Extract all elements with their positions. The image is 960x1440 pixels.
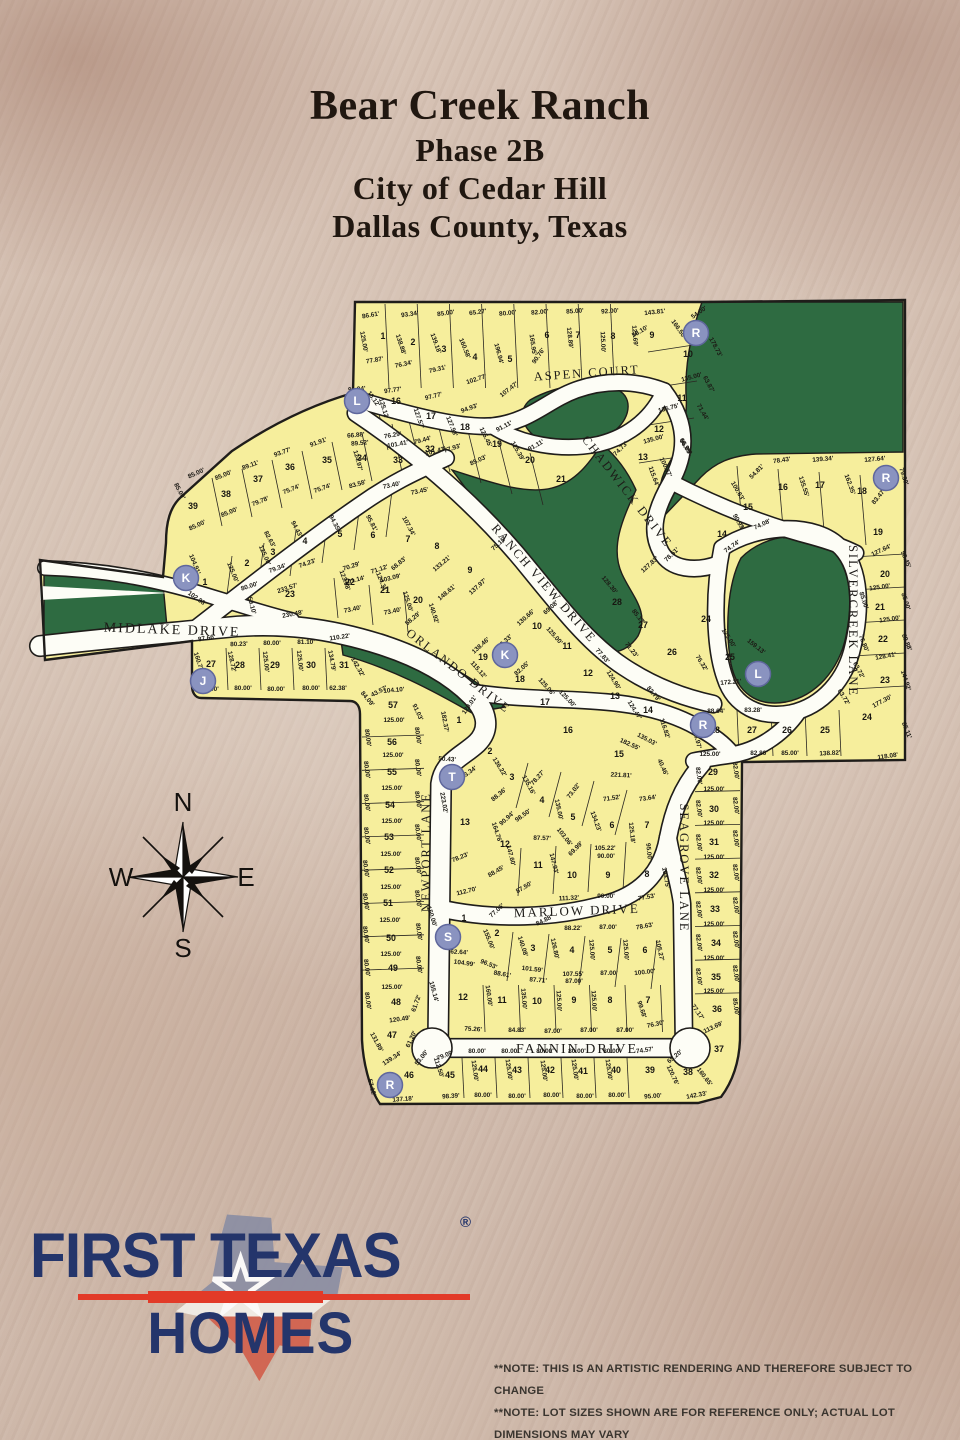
lot-number: 11	[533, 860, 542, 870]
lot-number: 57	[388, 700, 398, 710]
lot-number: 20	[525, 455, 535, 465]
lot-number: 56	[387, 737, 397, 747]
lot-dimension: 80.00'	[576, 1093, 594, 1100]
lot-number: 17	[815, 480, 825, 490]
lot-number: 5	[571, 812, 576, 822]
lot-number: 28	[612, 597, 622, 607]
svg-text:R: R	[692, 326, 701, 340]
lot-number: 9	[650, 330, 655, 340]
lot-number: 47	[387, 1030, 397, 1040]
lot-number: 7	[645, 820, 650, 830]
lot-dimension: 125.00'	[699, 751, 721, 758]
lot-number: 12	[583, 668, 593, 678]
lot-number: 33	[710, 904, 720, 914]
lot-number: 40	[611, 1065, 621, 1075]
lot-dimension: 87.00'	[565, 978, 583, 985]
lot-number: 34	[711, 938, 721, 948]
svg-text:R: R	[699, 718, 708, 732]
disclaimer-notes: **NOTE: THIS IS AN ARTISTIC RENDERING AN…	[494, 1358, 934, 1440]
lot-dimension: 95.00'	[644, 1092, 662, 1100]
lot-number: 15	[614, 749, 624, 759]
lot-dimension: 125.00'	[703, 820, 725, 827]
lot-number: 23	[285, 589, 295, 599]
lot-number: 37	[253, 474, 263, 484]
lot-number: 21	[380, 585, 390, 595]
lot-dimension: 125.00'	[381, 785, 403, 792]
svg-text:R: R	[386, 1078, 395, 1092]
svg-text:S: S	[444, 930, 452, 944]
lot-number: 22	[345, 577, 355, 587]
lot-dimension: 107.55'	[562, 971, 584, 978]
lot-number: 8	[435, 541, 440, 551]
lot-dimension: 80.23'	[230, 641, 248, 649]
logo-homes: HOMES	[94, 1300, 408, 1367]
compass-letter-n: N	[174, 787, 193, 817]
lot-dimension: 87.00'	[616, 1027, 634, 1034]
lot-number: 14	[643, 705, 653, 715]
lot-dimension: 62.38'	[329, 685, 347, 692]
lot-number: 19	[873, 527, 883, 537]
lot-number: 11	[562, 641, 571, 651]
lot-dimension: 84.83'	[508, 1027, 526, 1034]
lot-number: 34	[357, 453, 367, 463]
lot-number: 2	[488, 746, 493, 756]
lot-number: 49	[388, 963, 398, 973]
lot-number: 35	[322, 455, 332, 465]
lot-dimension: 125.00'	[379, 917, 401, 924]
lot-number: 30	[709, 804, 719, 814]
lot-dimension: 125.00'	[554, 990, 562, 1012]
lot-number: 31	[339, 660, 349, 670]
lot-number: 18	[460, 422, 470, 432]
street-name: FANNIN DRIVE	[516, 1042, 638, 1057]
lot-number: 8	[645, 869, 650, 879]
lot-number: 45	[445, 1070, 455, 1080]
lot-number: 32	[425, 444, 435, 454]
map-badge: L	[746, 662, 771, 687]
lot-dimension: 62.64'	[450, 949, 468, 957]
map-badge: T	[440, 765, 465, 790]
lot-number: 44	[478, 1064, 488, 1074]
lot-number: 32	[709, 870, 719, 880]
lot-dimension: 221.81'	[610, 771, 632, 779]
lot-number: 27	[206, 659, 216, 669]
map-badge: L	[345, 389, 370, 414]
lot-number: 9	[606, 870, 611, 880]
lot-dimension: 85.00'	[566, 307, 584, 315]
lot-dimension: 85.00'	[172, 482, 187, 501]
lot-dimension: 125.00'	[381, 984, 403, 991]
lot-number: 10	[567, 870, 577, 880]
lot-number: 26	[782, 725, 792, 735]
lot-number: 10	[532, 996, 542, 1006]
lot-number: 13	[638, 452, 648, 462]
lot-number: 30	[306, 660, 316, 670]
lot-number: 7	[576, 330, 581, 340]
lot-number: 31	[709, 837, 719, 847]
lot-dimension: 125.00'	[703, 921, 725, 928]
lot-number: 36	[712, 1004, 722, 1014]
lot-number: 42	[545, 1065, 555, 1075]
lot-number: 14	[717, 529, 727, 539]
lot-number: 16	[778, 482, 788, 492]
lot-dimension: 87.00'	[580, 1027, 598, 1034]
lot-number: 4	[540, 795, 545, 805]
lot-number: 6	[643, 945, 648, 955]
lot-dimension: 125.00'	[383, 717, 405, 724]
svg-text:J: J	[200, 674, 207, 688]
lot-dimension: 138.82'	[819, 749, 841, 757]
map-badge: R	[691, 713, 716, 738]
lot-number: 16	[391, 396, 401, 406]
lot-number: 5	[338, 529, 343, 539]
lot-dimension: 88.22'	[564, 925, 582, 932]
lot-number: 6	[610, 820, 615, 830]
lot-number: 52	[384, 865, 394, 875]
lot-dimension: 83.28'	[744, 707, 762, 714]
lot-number: 1	[457, 715, 462, 725]
lot-number: 24	[862, 712, 872, 722]
lot-number: 15	[743, 502, 753, 512]
lot-number: 48	[391, 997, 401, 1007]
lot-number: 16	[563, 725, 573, 735]
map-badge: J	[191, 669, 216, 694]
lot-dimension: 125.00'	[703, 786, 725, 793]
lot-dimension: 80.00'	[263, 640, 281, 647]
lot-number: 39	[645, 1065, 655, 1075]
lot-number: 8	[611, 331, 616, 341]
builder-logo: FIRST TEXAS ® HOMES	[28, 1212, 498, 1372]
lot-number: 38	[683, 1067, 693, 1077]
lot-number: 21	[875, 602, 885, 612]
lot-number: 20	[880, 569, 890, 579]
map-badge: R	[378, 1073, 403, 1098]
lot-number: 1	[462, 913, 467, 923]
lot-number: 7	[406, 534, 411, 544]
lot-dimension: 111.32'	[559, 894, 580, 902]
logo-first-texas: FIRST TEXAS	[30, 1220, 450, 1292]
lot-dimension: 87.00'	[600, 970, 618, 977]
svg-text:L: L	[353, 394, 360, 408]
lot-dimension: 125.00'	[381, 818, 403, 825]
lot-dimension: 98.39'	[442, 1092, 460, 1100]
lot-number: 5	[508, 354, 513, 364]
lot-number: 24	[701, 614, 711, 624]
lot-dimension: 85.00'	[781, 750, 799, 757]
lot-dimension: 90.00'	[597, 893, 615, 900]
compass-letter-s: S	[174, 933, 191, 963]
lot-number: 2	[245, 558, 250, 568]
lot-number: 7	[646, 995, 651, 1005]
lot-number: 13	[460, 817, 470, 827]
lot-dimension: 125.00'	[587, 939, 595, 961]
lot-number: 5	[608, 945, 613, 955]
lot-dimension: 92.00'	[601, 307, 619, 315]
lot-dimension: 87.71'	[529, 976, 547, 984]
lot-number: 13	[610, 691, 620, 701]
lot-dimension: 80.00'	[468, 1048, 486, 1055]
lot-dimension: 80.00'	[474, 1092, 492, 1099]
lot-number: 18	[515, 674, 525, 684]
map-badge: K	[174, 566, 199, 591]
lot-number: 23	[880, 675, 890, 685]
lot-number: 20	[413, 595, 423, 605]
lot-number: 22	[878, 634, 888, 644]
lot-number: 36	[285, 462, 295, 472]
lot-number: 21	[556, 474, 566, 484]
lot-number: 54	[385, 800, 395, 810]
lot-dimension: 80.00'	[543, 1092, 561, 1099]
lot-number: 17	[540, 697, 550, 707]
lot-dimension: 50.43'	[438, 755, 456, 763]
lot-dimension: 105.22'	[594, 845, 616, 852]
lot-number: 38	[221, 489, 231, 499]
lot-number: 29	[708, 767, 718, 777]
compass-letter-w: W	[109, 862, 134, 892]
lot-number: 25	[725, 652, 735, 662]
lot-number: 28	[235, 660, 245, 670]
lot-dimension: 82.86'	[750, 750, 768, 757]
lot-number: 12	[500, 839, 510, 849]
svg-text:K: K	[501, 648, 510, 662]
lot-number: 37	[714, 1044, 724, 1054]
lot-number: 8	[608, 995, 613, 1005]
lot-dimension: 80.00'	[234, 685, 252, 692]
lot-number: 25	[820, 725, 830, 735]
lot-dimension: 125.00'	[380, 851, 402, 858]
lot-number: 55	[387, 767, 397, 777]
lot-number: 6	[371, 530, 376, 540]
lot-number: 19	[478, 652, 488, 662]
lot-number: 2	[495, 928, 500, 938]
lot-number: 3	[531, 943, 536, 953]
lot-number: 35	[711, 972, 721, 982]
svg-text:T: T	[448, 770, 456, 784]
lot-dimension: 80.00'	[267, 686, 285, 693]
lot-dimension: 125.00'	[703, 955, 725, 962]
note-lot-sizes: **NOTE: LOT SIZES SHOWN ARE FOR REFERENC…	[494, 1402, 934, 1440]
lot-number: 17	[426, 411, 436, 421]
lot-number: 12	[654, 424, 664, 434]
lot-dimension: 90.00'	[597, 853, 615, 860]
lot-number: 4	[570, 945, 575, 955]
lot-number: 9	[572, 995, 577, 1005]
svg-text:L: L	[754, 667, 761, 681]
lot-number: 19	[492, 439, 502, 449]
lot-number: 51	[383, 898, 393, 908]
lot-number: 3	[442, 344, 447, 354]
lot-number: 50	[386, 933, 396, 943]
svg-text:K: K	[182, 571, 191, 585]
map-badge: R	[684, 321, 709, 346]
map-badge: R	[874, 466, 899, 491]
lot-dimension: 87.57'	[533, 835, 551, 843]
lot-number: 41	[578, 1066, 588, 1076]
lot-dimension: 125.00'	[599, 331, 607, 353]
lot-number: 2	[411, 337, 416, 347]
lot-number: 53	[384, 832, 394, 842]
lot-dimension: 80.00'	[608, 1092, 626, 1099]
lot-dimension: 125.00'	[703, 887, 725, 894]
lot-dimension: 125.00'	[589, 990, 597, 1012]
street-name: SILVERCREEK LANE	[846, 545, 860, 697]
lot-number: 18	[857, 486, 867, 496]
street-name: NEWPORT LANE	[419, 792, 433, 912]
lot-number: 39	[188, 501, 198, 511]
compass-letter-e: E	[237, 862, 254, 892]
lot-dimension: 125.00'	[703, 988, 725, 995]
lot-dimension: 87.00'	[599, 924, 617, 931]
lot-number: 27	[638, 620, 648, 630]
lot-dimension: 75.26'	[464, 1026, 482, 1034]
lot-number: 46	[404, 1070, 414, 1080]
lot-number: 3	[510, 772, 515, 782]
lot-dimension: 125.00'	[382, 752, 404, 759]
lot-number: 6	[545, 330, 550, 340]
map-badge: S	[436, 925, 461, 950]
lot-number: 43	[512, 1065, 522, 1075]
lot-number: 3	[271, 547, 276, 557]
registered-mark: ®	[460, 1214, 471, 1231]
lot-dimension: 81.10'	[297, 639, 315, 646]
lot-number: 33	[393, 455, 403, 465]
lot-dimension: 80.00'	[508, 1093, 526, 1100]
lot-dimension: 125.00'	[380, 884, 402, 891]
lot-dimension: 125.00'	[380, 951, 402, 958]
map-badge: K	[493, 643, 518, 668]
compass-rose: NESW	[109, 787, 255, 963]
lot-number: 4	[473, 352, 478, 362]
lot-number: 9	[468, 565, 473, 575]
lot-number: 1	[381, 331, 386, 341]
lot-dimension: 87.00'	[544, 1028, 562, 1035]
lot-number: 1	[203, 577, 208, 587]
lot-number: 27	[747, 725, 757, 735]
lot-dimension: 80.00'	[302, 685, 320, 692]
lot-number: 11	[497, 995, 506, 1005]
svg-text:R: R	[882, 471, 891, 485]
lot-number: 4	[303, 536, 308, 546]
lot-number: 10	[532, 621, 542, 631]
lot-number: 26	[667, 647, 677, 657]
note-artistic-rendering: **NOTE: THIS IS AN ARTISTIC RENDERING AN…	[494, 1358, 934, 1402]
flyer-page: Bear Creek Ranch Phase 2B City of Cedar …	[0, 0, 960, 1440]
lot-dimension: 125.00'	[621, 939, 629, 961]
lot-number: 10	[683, 349, 693, 359]
lot-number: 11	[677, 393, 686, 403]
street-name: SEAGROVE LANE	[677, 803, 691, 932]
lot-number: 12	[458, 992, 468, 1002]
lot-dimension: 125.00'	[703, 854, 725, 861]
lot-number: 29	[270, 660, 280, 670]
